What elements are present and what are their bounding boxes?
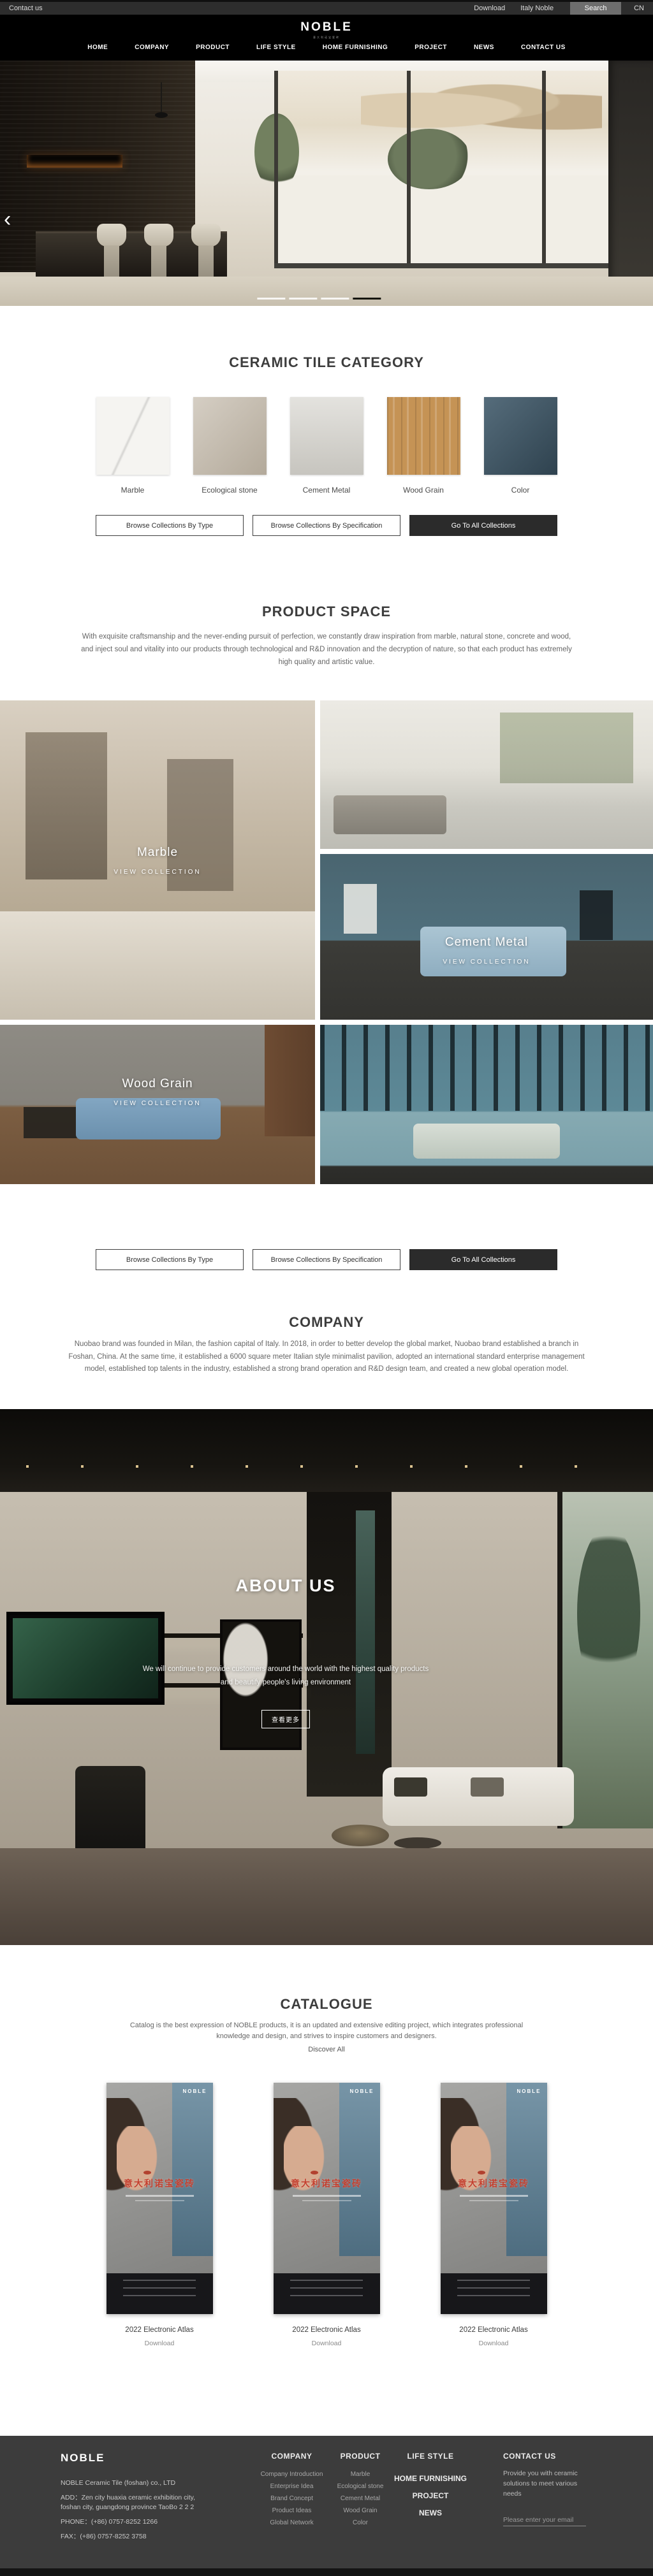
product-space-paragraph: With exquisite craftsmanship and the nev… bbox=[81, 630, 572, 669]
catalogue-download-link[interactable]: Download bbox=[274, 2340, 380, 2347]
poster-deco-bar bbox=[460, 2195, 528, 2197]
poster-footer-band bbox=[274, 2273, 380, 2314]
footer-fax: FAX：(+86) 0757-8252 3758 bbox=[61, 2532, 217, 2542]
ceramic-tile-category-section: CERAMIC TILE CATEGORY Marble Ecological … bbox=[0, 306, 653, 567]
footer-product-links: Marble Ecological stone Cement Metal Woo… bbox=[328, 2468, 392, 2529]
tile-category-ecological-stone[interactable]: Ecological stone bbox=[193, 397, 267, 495]
tile-label: Color bbox=[484, 486, 557, 495]
logo-tagline: 意大利诺宝瓷砖 bbox=[313, 36, 340, 40]
nav-life-style[interactable]: LIFE STYLE bbox=[256, 44, 296, 51]
footer-link-product-ideas[interactable]: Product Ideas bbox=[255, 2505, 328, 2517]
footer-link-life-style[interactable]: LIFE STYLE bbox=[392, 2452, 469, 2461]
footer-brand-column: NOBLE NOBLE Ceramic Tile (foshan) co., L… bbox=[61, 2452, 255, 2547]
nav-news[interactable]: NEWS bbox=[474, 44, 494, 51]
footer-link-home-furnishing[interactable]: HOME FURNISHING bbox=[392, 2470, 469, 2487]
footer-nav-links: HOME FURNISHING PROJECT NEWS bbox=[392, 2470, 469, 2522]
about-us-title: ABOUT US bbox=[0, 1576, 571, 1596]
view-collection-link[interactable]: VIEW COLLECTION bbox=[0, 869, 315, 876]
footer-contact-blurb: Provide you with ceramic solutions to me… bbox=[503, 2468, 589, 2499]
tile-label: Wood Grain bbox=[387, 486, 460, 495]
site-footer: NOBLE NOBLE Ceramic Tile (foshan) co., L… bbox=[0, 2436, 653, 2576]
footer-logo: NOBLE bbox=[61, 2452, 255, 2464]
poster-deco-bar bbox=[302, 2200, 351, 2201]
about-overlay: ABOUT US We will continue to provide cus… bbox=[0, 1409, 571, 1945]
tile-category-wood-grain[interactable]: Wood Grain bbox=[387, 397, 460, 495]
carousel-prev-arrow[interactable]: ‹ bbox=[4, 208, 11, 230]
go-to-all-collections-button[interactable]: Go To All Collections bbox=[409, 515, 557, 536]
about-line-2: and beautify people's living environment bbox=[0, 1676, 571, 1690]
hero-right-display-wall bbox=[608, 61, 653, 282]
tile-category-marble[interactable]: Marble bbox=[96, 397, 170, 495]
footer-phone: PHONE：(+86) 0757-8252 1266 bbox=[61, 2517, 217, 2527]
poster-title-cn: 意大利诺宝瓷砖 bbox=[277, 2177, 376, 2190]
catalogue-title: CATALOGUE bbox=[0, 1996, 653, 2013]
window-mullion bbox=[274, 71, 278, 264]
window-sill bbox=[274, 263, 608, 268]
poster-deco-bar bbox=[293, 2195, 361, 2197]
noble-homepage: Contact us Download Italy Noble Search C… bbox=[0, 0, 653, 2576]
footer-contact-column: CONTACT US Provide you with ceramic solu… bbox=[503, 2452, 605, 2547]
footer-company-name: NOBLE Ceramic Tile (foshan) co., LTD bbox=[61, 2478, 217, 2488]
poster-deco-bar bbox=[469, 2200, 518, 2201]
browse-by-type-button[interactable]: Browse Collections By Type bbox=[96, 515, 244, 536]
nav-product[interactable]: PRODUCT bbox=[196, 44, 230, 51]
poster-footer-band bbox=[441, 2273, 547, 2314]
space-card-bright-room[interactable] bbox=[320, 700, 653, 849]
footer-link-enterprise-idea[interactable]: Enterprise Idea bbox=[255, 2480, 328, 2493]
catalogue-covers-row: NOBLE 意大利诺宝瓷砖 2022 Electronic Atlas Down… bbox=[0, 2083, 653, 2347]
carousel-dot[interactable] bbox=[289, 298, 317, 300]
footer-address: ADD：Zen city huaxia ceramic exhibition c… bbox=[61, 2493, 217, 2512]
footer-link-company-introduction[interactable]: Company Introduction bbox=[255, 2468, 328, 2480]
catalogue-item: NOBLE 意大利诺宝瓷砖 2022 Electronic Atlas Down… bbox=[274, 2083, 380, 2347]
category-button-row: Browse Collections By Type Browse Collec… bbox=[0, 515, 653, 536]
window-mullion bbox=[542, 71, 546, 264]
poster-deco-bar bbox=[126, 2195, 194, 2197]
card-name: Cement Metal bbox=[320, 936, 653, 950]
download-link[interactable]: Download bbox=[474, 4, 505, 12]
nav-project[interactable]: PROJECT bbox=[415, 44, 447, 51]
catalogue-section: CATALOGUE Catalog is the best expression… bbox=[0, 1945, 653, 2436]
poster-blue-panel bbox=[506, 2083, 547, 2256]
space-card-cement-metal[interactable]: Cement Metal VIEW COLLECTION bbox=[320, 854, 653, 1020]
footer-column-title: PRODUCT bbox=[328, 2452, 392, 2461]
footer-link-ecological-stone[interactable]: Ecological stone bbox=[328, 2480, 392, 2493]
catalogue-item: NOBLE 意大利诺宝瓷砖 2022 Electronic Atlas Down… bbox=[106, 2083, 213, 2347]
cement-metal-swatch bbox=[290, 397, 363, 475]
category-title: CERAMIC TILE CATEGORY bbox=[0, 354, 653, 371]
garden-bush bbox=[388, 129, 471, 189]
footer-nav-column: LIFE STYLE HOME FURNISHING PROJECT NEWS bbox=[392, 2452, 469, 2547]
product-space-button-row: Browse Collections By Type Browse Collec… bbox=[0, 1249, 653, 1270]
catalogue-item-title: 2022 Electronic Atlas bbox=[106, 2326, 213, 2334]
discover-all-link[interactable]: Discover All bbox=[0, 2046, 653, 2053]
carousel-dot-active[interactable] bbox=[353, 298, 381, 300]
footer-column-title: CONTACT US bbox=[503, 2452, 605, 2461]
space-card-marble[interactable]: Marble VIEW COLLECTION bbox=[0, 700, 315, 1020]
footer-inner: NOBLE NOBLE Ceramic Tile (foshan) co., L… bbox=[0, 2436, 653, 2547]
footer-company-links: Company Introduction Enterprise Idea Bra… bbox=[255, 2468, 328, 2529]
pendant-lamp bbox=[161, 82, 162, 113]
card-overlay: Wood Grain VIEW COLLECTION bbox=[0, 1077, 315, 1107]
catalogue-download-link[interactable]: Download bbox=[106, 2340, 213, 2347]
footer-link-wood-grain[interactable]: Wood Grain bbox=[328, 2505, 392, 2517]
view-more-button[interactable]: 查看更多 bbox=[261, 1710, 310, 1728]
poster-title-cn: 意大利诺宝瓷砖 bbox=[110, 2177, 209, 2190]
top-utility-bar: Contact us Download Italy Noble Search C… bbox=[0, 0, 653, 15]
poster-model-lips bbox=[478, 2171, 485, 2174]
browse-by-specification-button[interactable]: Browse Collections By Specification bbox=[253, 515, 400, 536]
footer-company-column: COMPANY Company Introduction Enterprise … bbox=[255, 2452, 328, 2547]
nav-company[interactable]: COMPANY bbox=[135, 44, 169, 51]
poster-title-cn: 意大利诺宝瓷砖 bbox=[444, 2177, 543, 2190]
ecological-stone-swatch bbox=[193, 397, 267, 475]
card-name: Wood Grain bbox=[0, 1077, 315, 1091]
company-title: COMPANY bbox=[0, 1314, 653, 1331]
company-paragraph: Nuobao brand was founded in Milan, the f… bbox=[68, 1338, 585, 1376]
footer-link-color[interactable]: Color bbox=[328, 2517, 392, 2529]
poster-model-lips bbox=[311, 2171, 318, 2174]
catalogue-paragraph: Catalog is the best expression of NOBLE … bbox=[122, 2020, 531, 2042]
poster-blue-panel bbox=[172, 2083, 213, 2256]
wood-grain-swatch bbox=[387, 397, 460, 475]
about-line-1: We will continue to provide customers ar… bbox=[0, 1663, 571, 1676]
garden-rocks bbox=[361, 78, 601, 136]
footer-column-title: COMPANY bbox=[255, 2452, 328, 2461]
search-button[interactable]: Search bbox=[570, 2, 621, 15]
carousel-indicators bbox=[257, 298, 381, 300]
product-space-title: PRODUCT SPACE bbox=[0, 604, 653, 620]
poster-model-lips bbox=[143, 2171, 151, 2174]
product-space-section: PRODUCT SPACE With exquisite craftsmansh… bbox=[0, 567, 653, 1287]
fireplace bbox=[27, 155, 122, 168]
nav-home[interactable]: HOME bbox=[87, 44, 108, 51]
nav-home-furnishing[interactable]: HOME FURNISHING bbox=[323, 44, 388, 51]
tile-category-cement-metal[interactable]: Cement Metal bbox=[290, 397, 363, 495]
tile-label: Ecological stone bbox=[193, 486, 267, 495]
card-overlay: Marble VIEW COLLECTION bbox=[0, 846, 315, 876]
footer-link-news[interactable]: NEWS bbox=[392, 2505, 469, 2522]
view-collection-link[interactable]: VIEW COLLECTION bbox=[320, 959, 653, 966]
poster-deco-bar bbox=[135, 2200, 184, 2201]
catalogue-item: NOBLE 意大利诺宝瓷砖 2022 Electronic Atlas Down… bbox=[441, 2083, 547, 2347]
catalogue-cover[interactable]: NOBLE 意大利诺宝瓷砖 bbox=[274, 2083, 380, 2314]
catalogue-cover[interactable]: NOBLE 意大利诺宝瓷砖 bbox=[441, 2083, 547, 2314]
space-card-slat-room[interactable] bbox=[320, 1025, 653, 1184]
hero-garden-window bbox=[274, 71, 608, 264]
view-collection-link[interactable]: VIEW COLLECTION bbox=[0, 1100, 315, 1107]
go-to-all-collections-button[interactable]: Go To All Collections bbox=[409, 1249, 557, 1270]
email-subscribe-input[interactable] bbox=[503, 2514, 586, 2526]
marble-swatch bbox=[96, 397, 170, 475]
space-card-wood-grain[interactable]: Wood Grain VIEW COLLECTION bbox=[0, 1025, 315, 1184]
hero-floor bbox=[0, 277, 653, 306]
card-name: Marble bbox=[0, 846, 315, 860]
catalogue-item-title: 2022 Electronic Atlas bbox=[274, 2326, 380, 2334]
browse-by-specification-button[interactable]: Browse Collections By Specification bbox=[253, 1249, 400, 1270]
catalogue-download-link[interactable]: Download bbox=[441, 2340, 547, 2347]
card-overlay: Cement Metal VIEW COLLECTION bbox=[320, 936, 653, 966]
hero-carousel: ‹ bbox=[0, 61, 653, 306]
company-section: COMPANY Nuobao brand was founded in Mila… bbox=[0, 1287, 653, 1409]
footer-link-brand-concept[interactable]: Brand Concept bbox=[255, 2493, 328, 2505]
about-us-banner: ABOUT US We will continue to provide cus… bbox=[0, 1409, 653, 1945]
footer-link-cement-metal[interactable]: Cement Metal bbox=[328, 2493, 392, 2505]
tile-swatch-row: Marble Ecological stone Cement Metal Woo… bbox=[0, 397, 653, 495]
garden-gravel bbox=[274, 175, 608, 264]
color-swatch bbox=[484, 397, 557, 475]
poster-blue-panel bbox=[339, 2083, 380, 2256]
language-toggle-cn[interactable]: CN bbox=[634, 4, 644, 12]
site-header: NOBLE 意大利诺宝瓷砖 HOME COMPANY PRODUCT LIFE … bbox=[0, 15, 653, 61]
tile-label: Cement Metal bbox=[290, 486, 363, 495]
footer-link-marble[interactable]: Marble bbox=[328, 2468, 392, 2480]
poster-brand: NOBLE bbox=[517, 2088, 541, 2094]
main-nav: HOME COMPANY PRODUCT LIFE STYLE HOME FUR… bbox=[87, 44, 566, 51]
catalogue-cover[interactable]: NOBLE 意大利诺宝瓷砖 bbox=[106, 2083, 213, 2314]
carousel-dot[interactable] bbox=[257, 298, 285, 300]
tile-category-color[interactable]: Color bbox=[484, 397, 557, 495]
nav-contact-us[interactable]: CONTACT US bbox=[521, 44, 566, 51]
carousel-dot[interactable] bbox=[321, 298, 349, 300]
browse-by-type-button[interactable]: Browse Collections By Type bbox=[96, 1249, 244, 1270]
contact-us-link[interactable]: Contact us bbox=[9, 4, 43, 12]
footer-link-project[interactable]: PROJECT bbox=[392, 2487, 469, 2505]
footer-company-info: NOBLE Ceramic Tile (foshan) co., LTD ADD… bbox=[61, 2478, 217, 2542]
tile-label: Marble bbox=[96, 486, 170, 495]
catalogue-item-title: 2022 Electronic Atlas bbox=[441, 2326, 547, 2334]
window-mullion bbox=[407, 71, 411, 264]
about-us-text: We will continue to provide customers ar… bbox=[0, 1663, 571, 1690]
footer-link-global-network[interactable]: Global Network bbox=[255, 2517, 328, 2529]
poster-brand: NOBLE bbox=[183, 2088, 207, 2094]
poster-brand: NOBLE bbox=[350, 2088, 374, 2094]
footer-product-column: PRODUCT Marble Ecological stone Cement M… bbox=[328, 2452, 392, 2547]
poster-footer-band bbox=[106, 2273, 213, 2314]
italy-noble-link[interactable]: Italy Noble bbox=[520, 4, 554, 12]
footer-bottom-bar bbox=[0, 2568, 653, 2576]
noble-logo[interactable]: NOBLE bbox=[300, 20, 353, 34]
